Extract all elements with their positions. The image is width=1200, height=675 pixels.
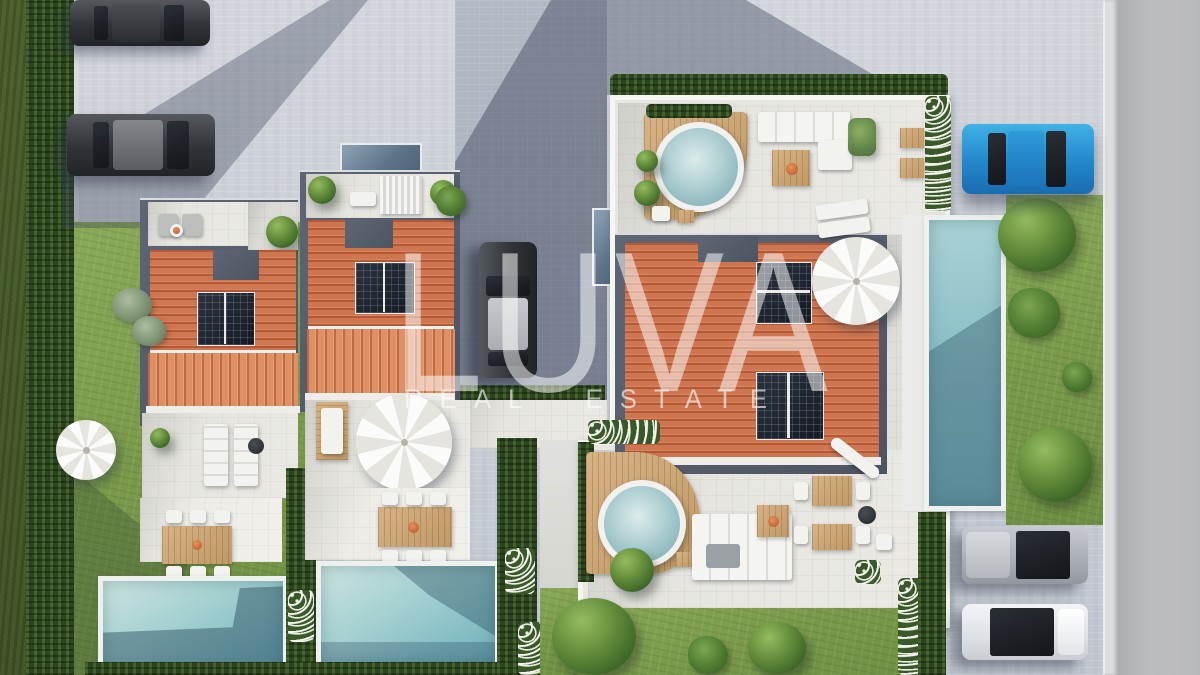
parked-car-top-2 [67, 114, 215, 176]
car-rear-window [93, 122, 109, 168]
terrace-table-decor [173, 227, 180, 234]
fire-bowl [768, 516, 779, 527]
dining-table [812, 524, 852, 550]
lounge-chair [876, 534, 892, 550]
dining-table [812, 476, 852, 506]
solar-panel-divider [224, 292, 226, 344]
pool-shadow [103, 581, 283, 670]
dining-chair [794, 526, 808, 544]
terrace-tree [266, 216, 298, 248]
pool-shadow [929, 220, 1001, 506]
aerial-render-scene: LUVA REAL ESTATE [0, 0, 1200, 675]
pergola-slats [380, 176, 422, 214]
car-glass-roof [990, 608, 1054, 656]
car-windshield [164, 5, 184, 41]
road [1118, 0, 1200, 675]
flower-bed [925, 96, 951, 212]
parking-hedge [918, 512, 946, 675]
pool-shadow-edge [321, 642, 495, 663]
sun-lounger [234, 424, 258, 486]
deck-plant [634, 180, 660, 206]
dining-chair [794, 482, 808, 500]
dining-chair [856, 526, 870, 544]
garden-hedge-bottom [85, 662, 300, 675]
terrace-lounger [350, 192, 376, 206]
car-glass-roof [1016, 531, 1070, 579]
flower-bed [505, 548, 535, 594]
lounge-chair [900, 158, 924, 178]
dining-chair [382, 492, 398, 505]
deck-planter [646, 104, 732, 118]
terrace-tree [610, 548, 654, 592]
garden-tree [1018, 428, 1092, 502]
lawn-bush [688, 636, 728, 674]
sun-lounger [204, 424, 228, 486]
hot-tub-upper [654, 122, 744, 212]
daybed-throw [706, 544, 740, 568]
car-hood [966, 532, 1010, 578]
garden-hedge-bottom [300, 662, 505, 675]
garden-bush [1062, 362, 1092, 392]
garden-bush [1008, 288, 1060, 338]
table-bowl [408, 522, 419, 533]
garden-shrub [132, 316, 166, 346]
car-rear-window [94, 6, 108, 40]
parasol-pole [83, 447, 90, 454]
lounger-cushion [321, 408, 343, 454]
flower-bed [288, 590, 314, 642]
patio-plant-pot [150, 428, 170, 448]
parked-car-right [962, 124, 1094, 194]
pool-walkway [902, 215, 924, 511]
outdoor-sofa [758, 112, 850, 142]
lawn-tree [748, 622, 806, 674]
car-roof [112, 4, 160, 42]
dining-chair [166, 510, 182, 523]
dining-chair [214, 510, 230, 523]
dining-chair [430, 492, 446, 505]
road-curb [1103, 0, 1118, 675]
solar-panels-house-a [197, 292, 255, 346]
parasol-pole [401, 439, 408, 446]
car-windshield [167, 121, 189, 169]
parasol-pole [853, 278, 860, 285]
house-a-roof-lower [148, 353, 298, 407]
parked-car-bottom-2 [962, 604, 1088, 660]
flower-bed [855, 560, 881, 584]
parked-car-bottom-1 [962, 526, 1088, 584]
round-table [858, 506, 876, 524]
barbecue-grill [248, 438, 264, 454]
pool-villa-side [924, 215, 1006, 511]
pool-house-b [316, 561, 500, 668]
car-rear-window [988, 133, 1006, 185]
outdoor-sofa-corner [818, 140, 852, 170]
car-roof [113, 120, 163, 170]
solar-panel-divider [383, 262, 385, 312]
parked-car-top-1 [70, 0, 210, 46]
table-bowl [192, 540, 202, 550]
house-a-gutter [146, 406, 300, 413]
garden-tree [998, 198, 1076, 272]
car-roof [1008, 131, 1044, 187]
terrace-planter-grass [848, 118, 876, 156]
boundary-hedge-left [26, 0, 74, 675]
house-a-roof-notch [213, 250, 259, 280]
fire-bowl [786, 163, 798, 175]
lawn-tree [552, 598, 636, 675]
car-hood [1058, 609, 1084, 655]
house-b-roof-notch [345, 220, 393, 248]
terrace-tree [308, 176, 336, 204]
watermark-tagline: REAL ESTATE [404, 384, 784, 415]
dining-chair [406, 492, 422, 505]
lounge-chair [900, 128, 924, 148]
dining-chair [190, 510, 206, 523]
deck-plant [636, 150, 658, 172]
car-windshield [1046, 131, 1066, 187]
pool-house-a [98, 576, 288, 675]
dining-chair [856, 482, 870, 500]
terrace-lounger [182, 214, 202, 236]
patio-parasol-a [56, 420, 116, 480]
watermark-brand: LUVA [392, 238, 834, 408]
